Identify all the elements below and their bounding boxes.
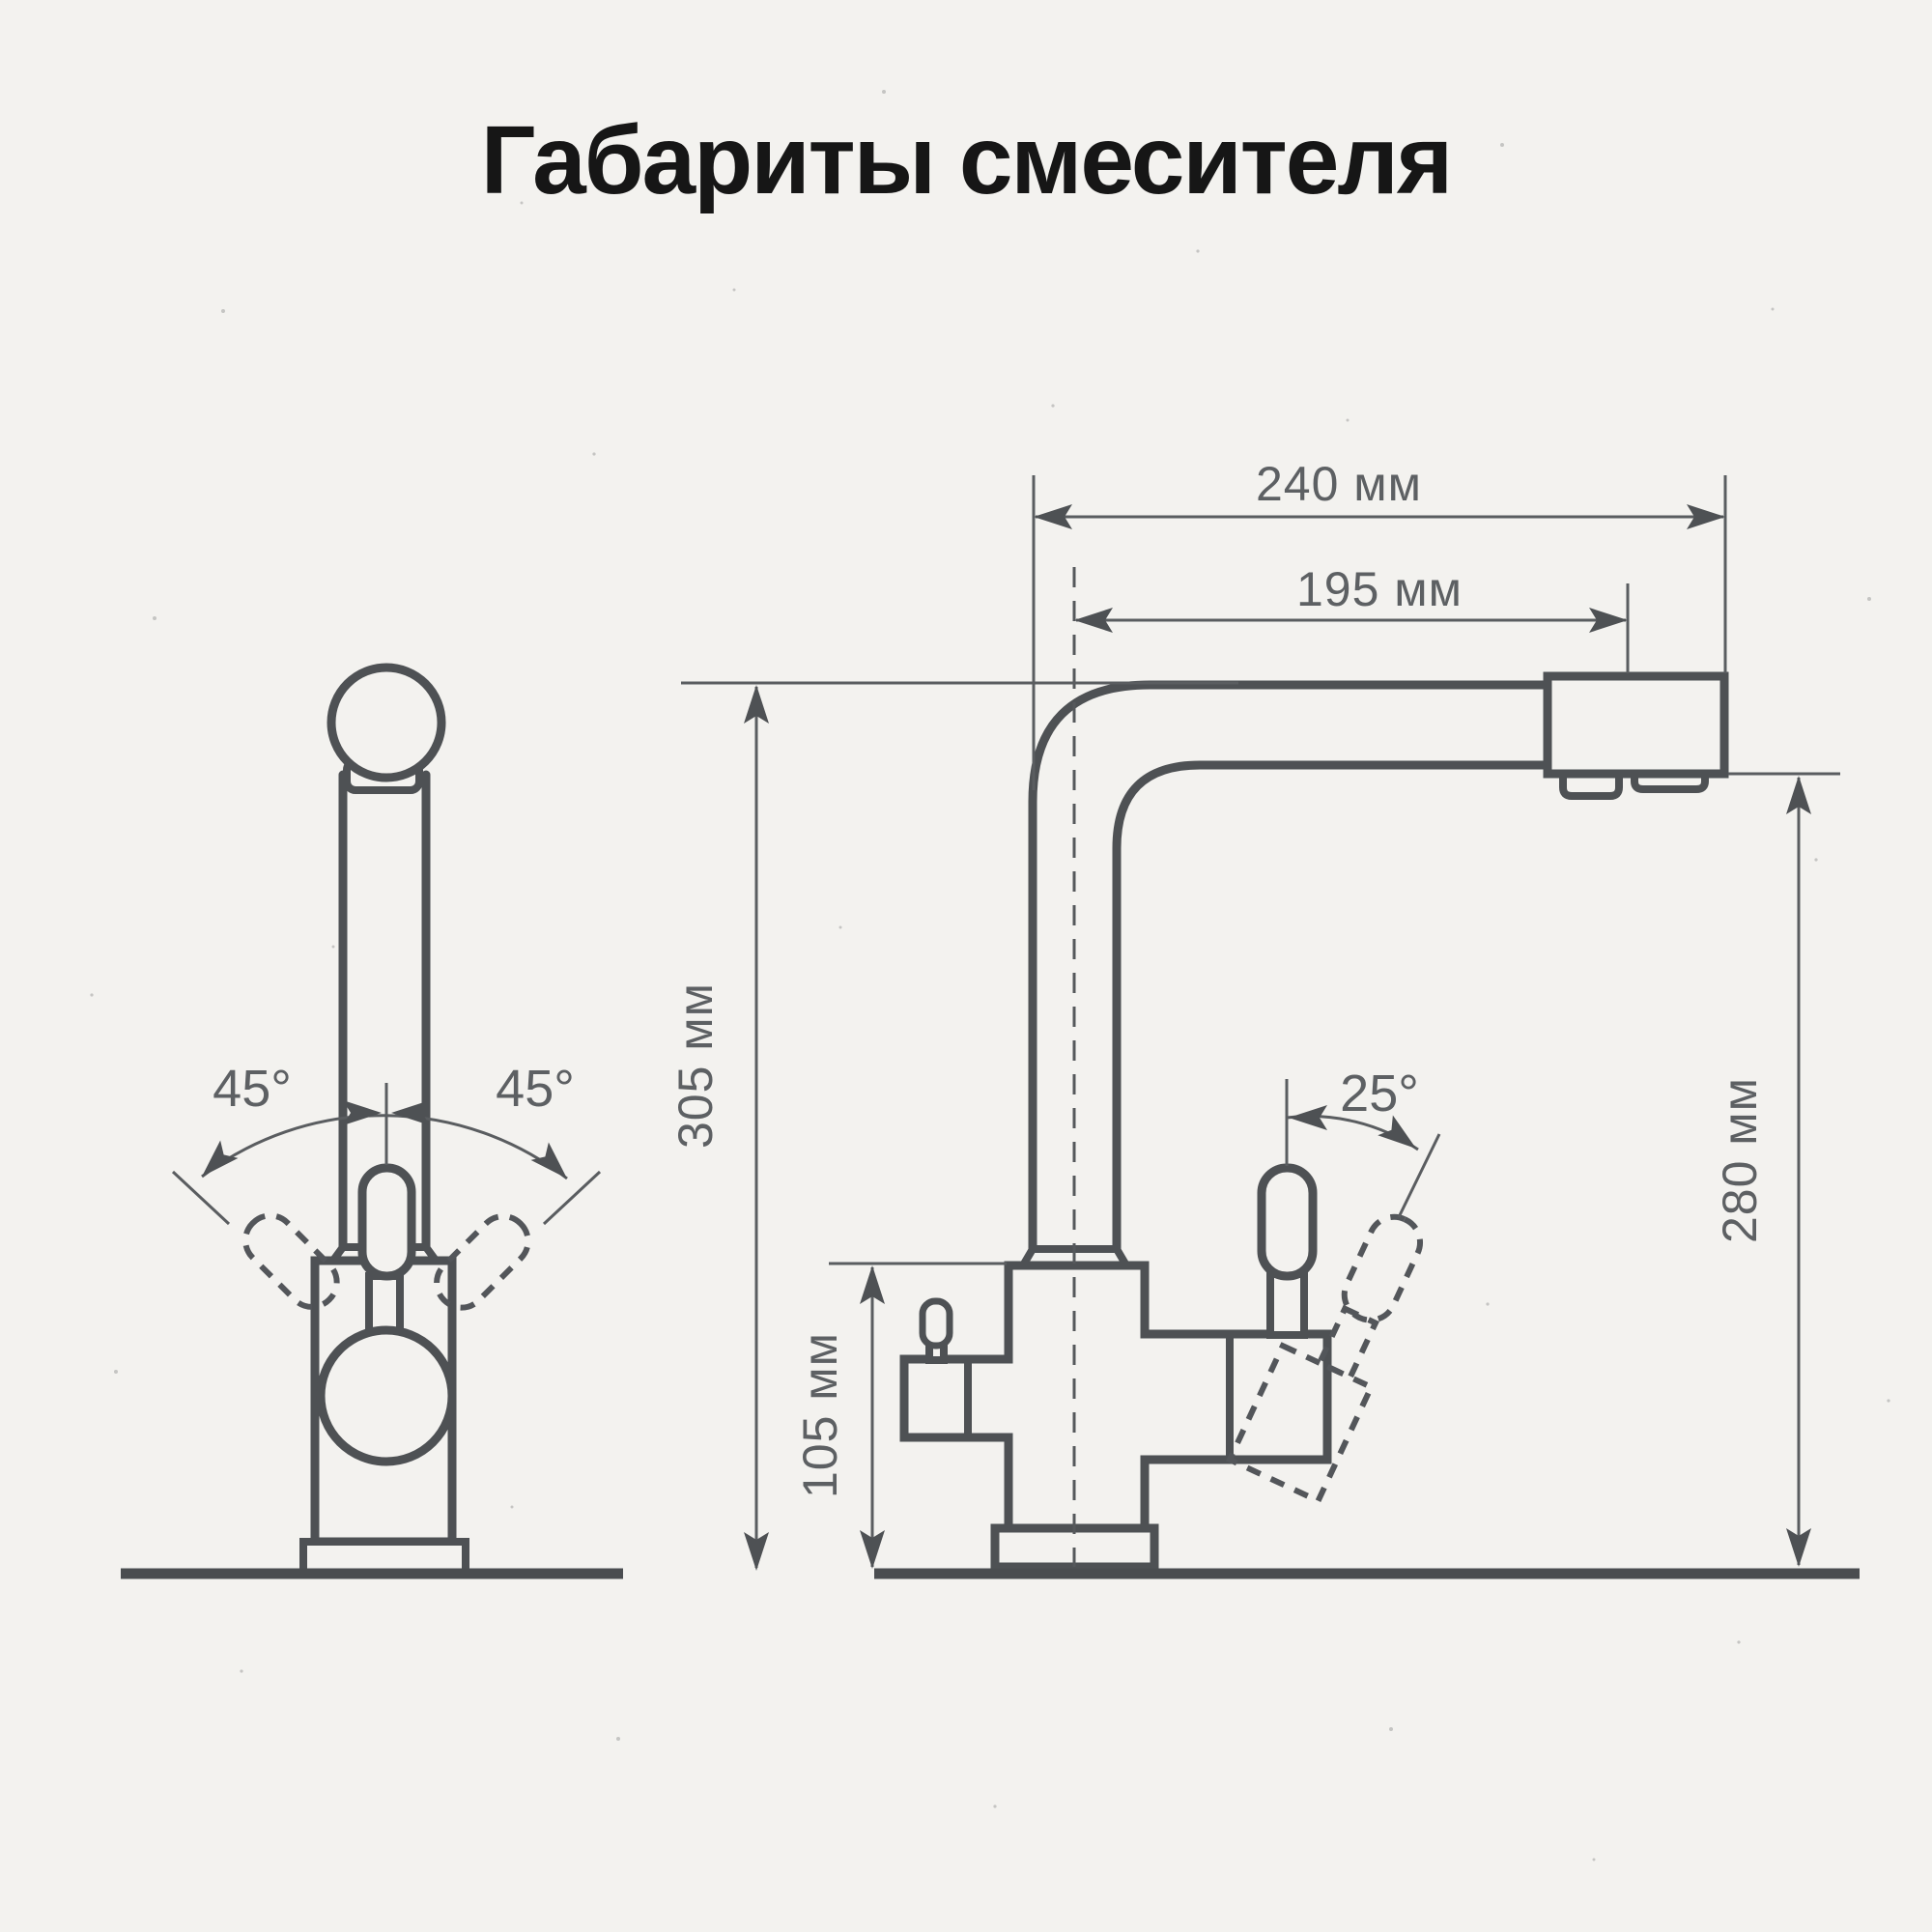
spout-outlet-left xyxy=(1563,776,1619,796)
spout-height-label: 280 мм xyxy=(1713,1077,1767,1243)
handle-side xyxy=(1262,1168,1313,1276)
cartridge-circle xyxy=(321,1330,452,1462)
filter-lever xyxy=(923,1301,950,1346)
swivel-right-label: 45° xyxy=(496,1060,575,1118)
dim-spout-reach: 195 мм xyxy=(1074,562,1628,673)
handle-angle-label: 25° xyxy=(1340,1065,1419,1122)
body-height-label: 105 мм xyxy=(793,1332,847,1498)
drawing-sheet: Габариты смесителя xyxy=(0,0,1932,1932)
swivel-left-label: 45° xyxy=(213,1060,292,1118)
spout-end-circle xyxy=(331,668,441,778)
handle-front xyxy=(362,1168,412,1276)
total-width-label: 240 мм xyxy=(1256,457,1422,511)
front-view: 45° 45° xyxy=(121,668,623,1575)
side-view: 25° xyxy=(874,676,1860,1574)
handle-stem-side xyxy=(1270,1274,1304,1335)
page-title: Габариты смесителя xyxy=(481,106,1452,214)
total-height-label: 305 мм xyxy=(668,982,723,1149)
spout-inner-profile xyxy=(1117,765,1548,1250)
paper-texture xyxy=(90,90,1889,1861)
faucet-dimension-diagram: Габариты смесителя xyxy=(0,0,1932,1932)
spout-head xyxy=(1548,676,1724,774)
dim-spout-height: 280 мм xyxy=(1713,774,1840,1567)
spout-reach-label: 195 мм xyxy=(1296,562,1463,616)
